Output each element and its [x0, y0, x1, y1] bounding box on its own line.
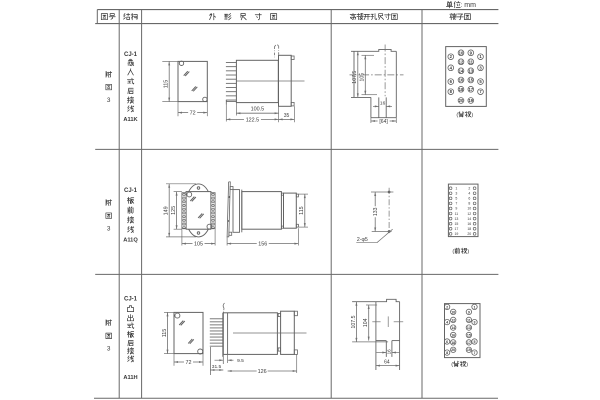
svg-text:126: 126 — [258, 369, 267, 375]
svg-text:5: 5 — [474, 340, 476, 344]
svg-text:107.5: 107.5 — [352, 71, 358, 84]
svg-text:19: 19 — [468, 98, 473, 103]
svg-text:4: 4 — [468, 191, 470, 195]
svg-text:107.5: 107.5 — [351, 315, 357, 328]
svg-text:11: 11 — [469, 59, 474, 64]
svg-text:19: 19 — [454, 232, 458, 236]
svg-text:12: 12 — [467, 212, 471, 216]
svg-text:A11H: A11H — [123, 375, 137, 381]
svg-text:35: 35 — [284, 113, 290, 119]
svg-text:105: 105 — [360, 73, 366, 82]
svg-text:14: 14 — [467, 217, 471, 221]
svg-text:7: 7 — [474, 351, 476, 355]
svg-text:31.5: 31.5 — [212, 364, 222, 370]
svg-text:18: 18 — [467, 227, 471, 231]
svg-text:2-φ5: 2-φ5 — [357, 237, 368, 243]
svg-text:9: 9 — [468, 310, 470, 314]
svg-text:A11Q: A11Q — [123, 237, 138, 243]
svg-text:64: 64 — [384, 359, 390, 365]
svg-text:100.5: 100.5 — [251, 107, 265, 113]
svg-text:105: 105 — [194, 242, 203, 248]
svg-text:18: 18 — [451, 341, 455, 345]
svg-text:CJ-1: CJ-1 — [124, 188, 138, 194]
svg-text:3: 3 — [455, 191, 457, 195]
svg-text:13: 13 — [467, 326, 471, 330]
svg-text:11: 11 — [467, 318, 471, 322]
svg-text:6: 6 — [468, 197, 470, 201]
svg-text:[64]: [64] — [379, 119, 388, 125]
svg-text:13: 13 — [468, 68, 473, 73]
svg-text:156: 156 — [258, 242, 267, 248]
svg-text:10: 10 — [467, 207, 471, 211]
svg-text:16: 16 — [459, 78, 464, 83]
svg-text:4: 4 — [446, 320, 448, 324]
svg-text:8: 8 — [446, 351, 448, 355]
svg-text:16: 16 — [467, 222, 471, 226]
svg-text:14: 14 — [451, 326, 455, 330]
svg-text:125: 125 — [171, 206, 177, 215]
svg-text:(: ( — [452, 249, 454, 255]
svg-text:2: 2 — [468, 186, 470, 190]
svg-text:CJ-1: CJ-1 — [124, 52, 138, 58]
svg-text:19: 19 — [467, 348, 471, 352]
svg-text:): ) — [466, 362, 468, 368]
svg-text:14: 14 — [459, 68, 464, 73]
svg-text:115: 115 — [299, 206, 305, 215]
svg-text:72: 72 — [190, 111, 196, 117]
svg-text:(: ( — [456, 112, 458, 118]
svg-text:3: 3 — [474, 320, 476, 324]
svg-text:15: 15 — [454, 222, 458, 226]
svg-text:17: 17 — [467, 341, 471, 345]
svg-text:): ) — [467, 249, 469, 255]
svg-text:5: 5 — [455, 197, 457, 201]
svg-text:16: 16 — [380, 101, 386, 107]
svg-text:17: 17 — [454, 227, 458, 231]
svg-text:15: 15 — [468, 78, 473, 83]
svg-text:6: 6 — [446, 340, 448, 344]
svg-text:A11K: A11K — [123, 117, 138, 123]
svg-text:149: 149 — [164, 206, 170, 215]
svg-text:mm: mm — [464, 2, 476, 9]
svg-text:7: 7 — [455, 202, 457, 206]
svg-text:20: 20 — [451, 348, 455, 352]
svg-text:3: 3 — [107, 346, 111, 353]
svg-text:1: 1 — [455, 186, 457, 190]
svg-text:16: 16 — [451, 333, 455, 337]
svg-text::: : — [460, 2, 462, 9]
svg-text:10: 10 — [451, 310, 455, 314]
svg-text:9.5: 9.5 — [237, 358, 244, 364]
svg-text:12: 12 — [459, 59, 464, 64]
svg-text:20: 20 — [467, 232, 471, 236]
svg-text:8: 8 — [468, 202, 470, 206]
svg-text:): ) — [471, 112, 473, 118]
svg-text:3: 3 — [107, 226, 111, 233]
svg-text:1: 1 — [474, 305, 476, 309]
svg-text:20: 20 — [459, 98, 464, 103]
svg-text:133: 133 — [373, 207, 379, 216]
svg-text:115: 115 — [162, 329, 168, 338]
svg-text:10: 10 — [459, 50, 464, 55]
svg-text:11: 11 — [455, 212, 459, 216]
svg-text:72: 72 — [186, 360, 192, 366]
svg-text:2: 2 — [446, 305, 448, 309]
svg-text:12: 12 — [451, 318, 455, 322]
svg-text:18: 18 — [459, 87, 464, 92]
svg-text:17: 17 — [468, 87, 473, 92]
svg-text:115: 115 — [164, 80, 170, 89]
svg-text:9: 9 — [455, 207, 457, 211]
svg-text:CJ-1: CJ-1 — [124, 297, 138, 303]
svg-text:(: ( — [451, 362, 453, 368]
svg-text:104: 104 — [363, 318, 369, 327]
svg-text:13: 13 — [454, 217, 458, 221]
svg-text:3: 3 — [107, 97, 111, 104]
svg-text:16: 16 — [387, 349, 392, 355]
svg-text:15: 15 — [467, 333, 471, 337]
svg-text:122.5: 122.5 — [246, 117, 260, 123]
